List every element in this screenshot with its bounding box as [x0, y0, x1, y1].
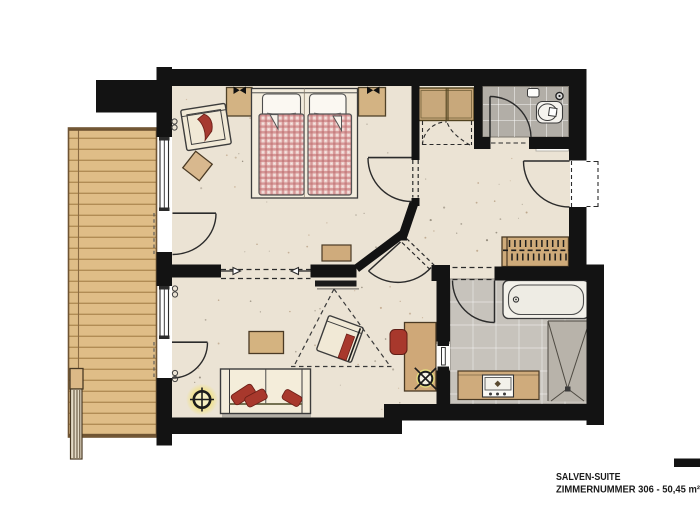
svg-text:ZIMMERNUMMER 306 - 50,45 m²: ZIMMERNUMMER 306 - 50,45 m² [556, 485, 700, 496]
svg-text:SALVEN-SUITE: SALVEN-SUITE [556, 472, 621, 483]
